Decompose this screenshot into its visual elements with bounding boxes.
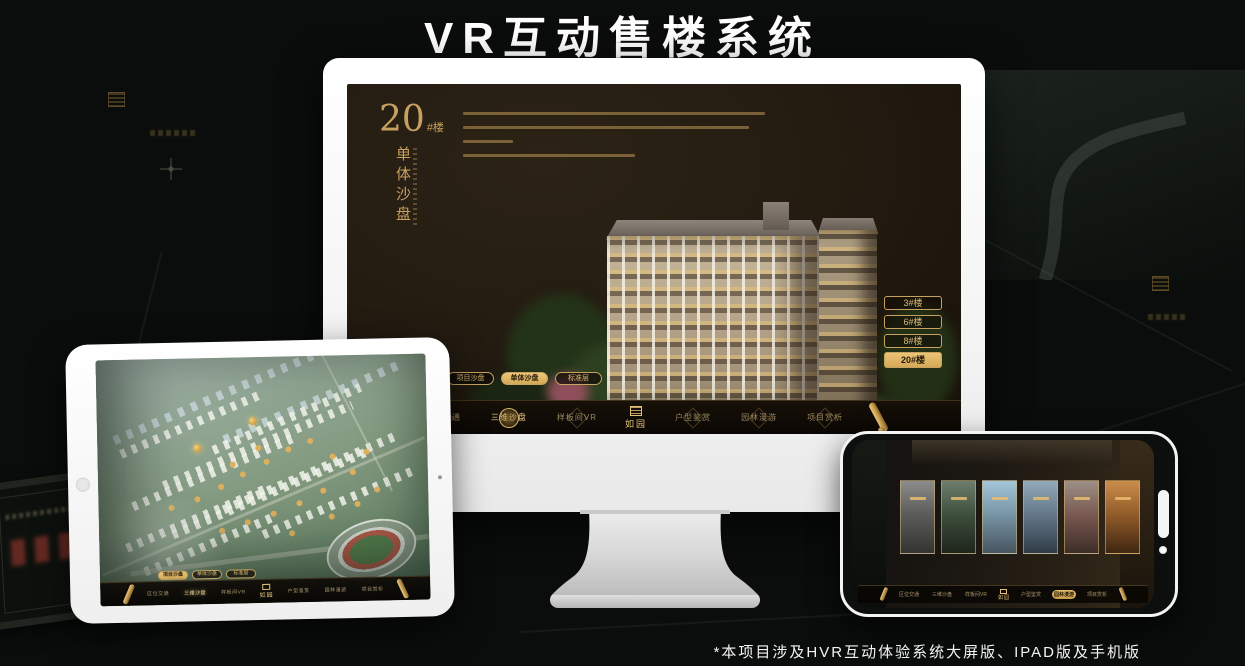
phone-device: 区位交通 三维沙盘 样板间VR 如园 户型鉴赏 园林漫游 项目赏析	[840, 431, 1178, 617]
tablet-home-button[interactable]	[76, 477, 90, 491]
phone-nav-floorplan[interactable]: 户型鉴赏	[1019, 590, 1043, 599]
phone-nav-garden-roam[interactable]: 园林漫游	[1052, 590, 1076, 599]
scroll-rod	[879, 587, 888, 601]
tablet-nav-location-traffic[interactable]: 区位交通	[146, 588, 170, 600]
phone-nav-location-traffic[interactable]: 区位交通	[897, 590, 921, 599]
scroll-handle-icon[interactable]	[123, 583, 133, 605]
scene-gallery	[900, 480, 1140, 554]
phone-camera-icon	[1159, 546, 1167, 554]
building-model-3d[interactable]	[407, 144, 947, 434]
phone-brand-logo: 如园	[998, 589, 1010, 601]
building-button-6[interactable]: 6#楼	[884, 315, 942, 329]
tablet-screen: 项目沙盘 单体沙盘 标准层 区位交通 三维沙盘 样板间VR 如园 户型鉴赏 园林…	[95, 354, 430, 607]
building-heading: 20#楼	[379, 102, 444, 138]
tablet-nav-project-appreciation[interactable]: 项目赏析	[360, 583, 384, 595]
building-button-8[interactable]: 8#楼	[884, 334, 942, 348]
building-tower-wing	[819, 230, 877, 426]
building-facade	[607, 236, 819, 404]
footnote: *本项目涉及HVR互动体验系统大屏版、IPAD版及手机版	[714, 641, 1141, 662]
background-aerial-photo	[985, 70, 1245, 280]
compass-star-icon	[160, 158, 182, 180]
nav-item-project-appreciation[interactable]: 项目赏析	[805, 409, 845, 426]
background-seal-icon	[1152, 276, 1169, 291]
scroll-rod	[1119, 587, 1128, 601]
brand-logo-text: 如园	[625, 417, 647, 430]
nav-item-showroom-vr[interactable]: 样板间VR	[555, 409, 599, 426]
phone-nav-3d-sandbox[interactable]: 三维沙盘	[930, 590, 954, 599]
scroll-handle-icon[interactable]	[1118, 587, 1127, 602]
tablet-camera-icon	[438, 475, 442, 479]
card-caption-marks	[951, 497, 967, 500]
building-button-20[interactable]: 20#楼	[884, 352, 942, 368]
paragraph-line	[463, 140, 513, 143]
scroll-rod	[122, 583, 135, 604]
nav-item-3d-sandbox[interactable]: 三维沙盘	[489, 409, 529, 426]
gallery-card-4[interactable]	[1023, 480, 1058, 554]
gallery-card-2[interactable]	[941, 480, 976, 554]
card-caption-marks	[992, 497, 1008, 500]
building-number-suffix: #楼	[427, 122, 444, 134]
card-caption-marks	[1033, 497, 1049, 500]
tablet-nav-garden-roam[interactable]: 园林漫游	[323, 584, 347, 596]
tablet-nav-showroom-vr[interactable]: 样板间VR	[220, 586, 247, 598]
tablet-device: 项目沙盘 单体沙盘 标准层 区位交通 三维沙盘 样板间VR 如园 户型鉴赏 园林…	[65, 337, 455, 624]
background-river	[985, 70, 1245, 280]
phone-screen: 区位交通 三维沙盘 样板间VR 如园 户型鉴赏 园林漫游 项目赏析	[852, 440, 1154, 608]
tab-standard-floor[interactable]: 标准层	[555, 372, 602, 385]
card-caption-marks	[910, 497, 926, 500]
view-tabs: 项目沙盘 单体沙盘 标准层	[447, 372, 602, 385]
phone-nav-project-appreciation[interactable]: 项目赏析	[1085, 590, 1109, 599]
gallery-card-6[interactable]	[1105, 480, 1140, 554]
gallery-card-3[interactable]	[982, 480, 1017, 554]
phone-nav-showroom-vr[interactable]: 样板间VR	[963, 590, 989, 599]
nav-item-garden-roam[interactable]: 园林漫游	[739, 409, 779, 426]
card-caption-marks	[1115, 497, 1131, 500]
background-road-line	[967, 230, 1233, 373]
background-gold-label	[1148, 314, 1188, 320]
paragraph-line	[463, 126, 749, 129]
phone-notch	[1158, 490, 1169, 538]
scroll-rod	[396, 577, 409, 598]
building-button-3[interactable]: 3#楼	[884, 296, 942, 310]
interior-ceiling-beam	[912, 440, 1112, 466]
tablet-nav-floorplan[interactable]: 户型鉴赏	[286, 585, 310, 597]
tablet-tab-standard-floor[interactable]: 标准层	[226, 569, 256, 579]
tablet-tab-project-sandbox[interactable]: 项目沙盘	[158, 571, 188, 581]
brand-seal-icon	[630, 406, 642, 416]
tablet-brand-logo: 如园	[259, 584, 273, 599]
card-caption-marks	[1074, 497, 1090, 500]
scroll-handle-icon[interactable]	[879, 587, 888, 602]
paragraph-line	[463, 112, 765, 115]
tab-single-sandbox[interactable]: 单体沙盘	[501, 372, 548, 385]
tablet-nav-3d-sandbox[interactable]: 三维沙盘	[183, 587, 207, 599]
tab-project-sandbox[interactable]: 项目沙盘	[447, 372, 494, 385]
brand-logo-text: 如园	[259, 590, 273, 599]
interior-pillar	[852, 440, 886, 608]
scroll-handle-icon[interactable]	[397, 577, 407, 599]
phone-navbar: 区位交通 三维沙盘 样板间VR 如园 户型鉴赏 园林漫游 项目赏析	[858, 585, 1148, 603]
page-title: VR互动售楼系统	[0, 2, 1245, 66]
brand-logo: 如园	[625, 406, 647, 430]
background-seal-icon	[108, 92, 125, 107]
gallery-card-1[interactable]	[900, 480, 935, 554]
scroll-handle-icon[interactable]	[871, 401, 885, 435]
building-rooftop-structure	[763, 202, 789, 230]
nav-item-floorplan[interactable]: 户型鉴赏	[673, 409, 713, 426]
tablet-tab-single-sandbox[interactable]: 单体沙盘	[192, 570, 222, 580]
background-gold-label	[150, 130, 196, 136]
monitor-stand	[480, 510, 830, 612]
gallery-card-5[interactable]	[1064, 480, 1099, 554]
building-number: 20	[379, 99, 425, 140]
brand-logo-text: 如园	[998, 594, 1010, 601]
aerial-vignette	[95, 354, 430, 607]
